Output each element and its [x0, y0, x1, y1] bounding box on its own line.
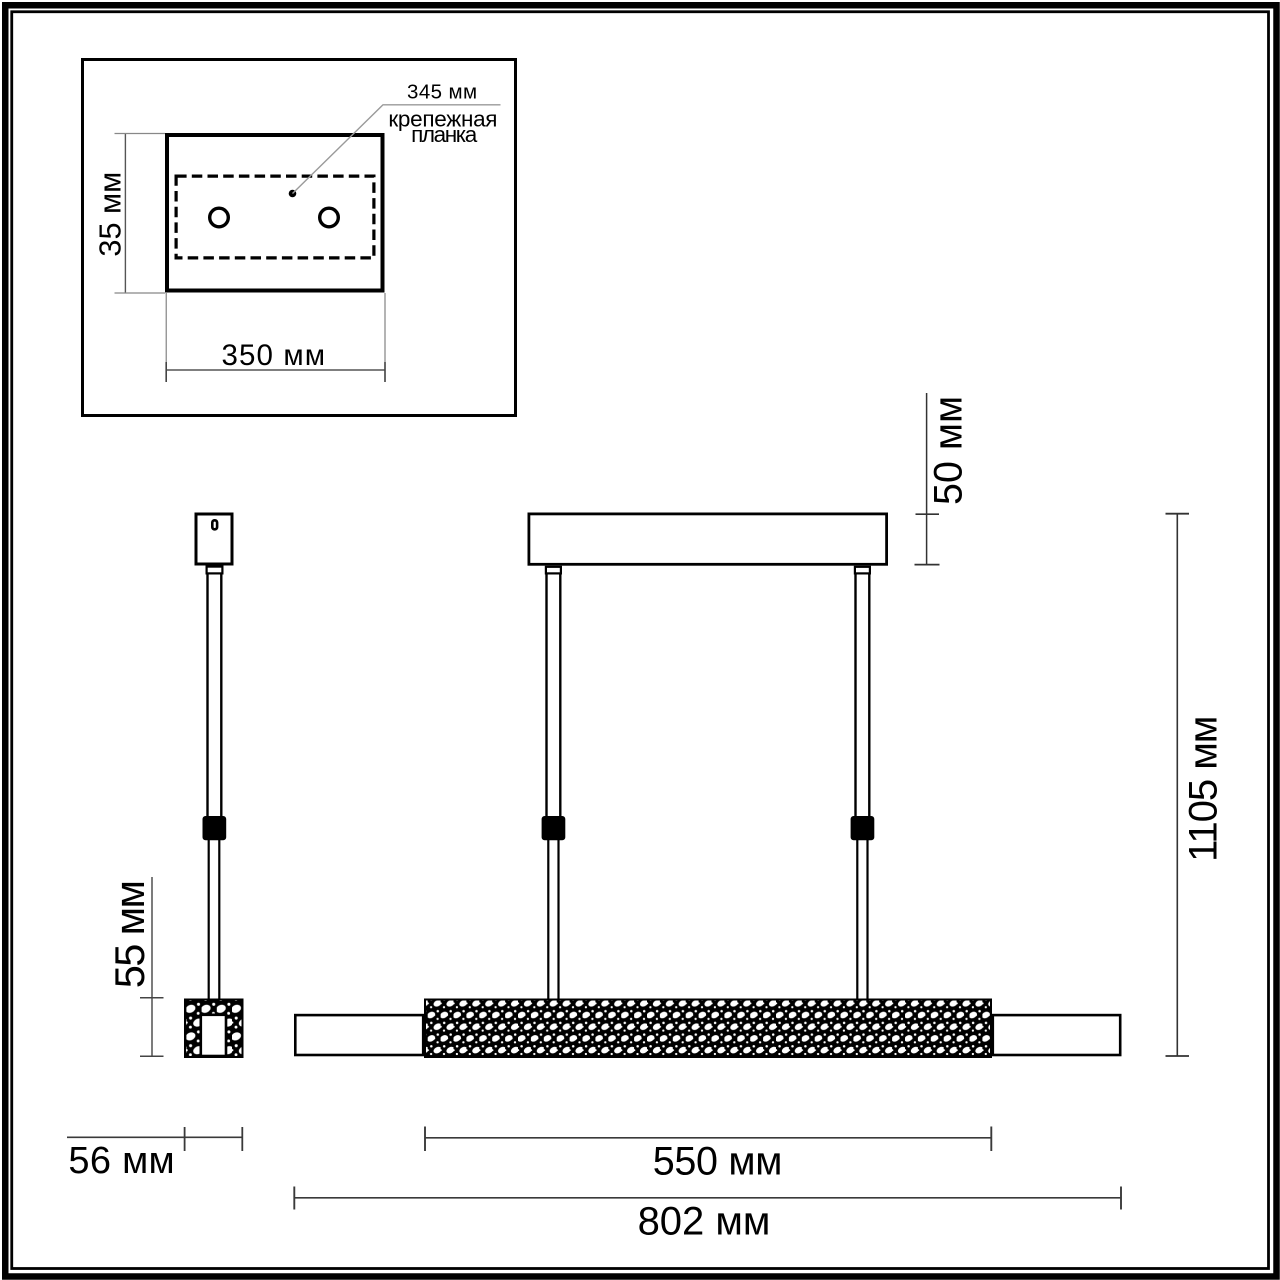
svg-text:35 мм: 35 мм [93, 172, 128, 257]
svg-text:планка: планка [411, 122, 478, 147]
svg-text:55 мм: 55 мм [106, 882, 153, 989]
svg-text:350 мм: 350 мм [222, 339, 327, 372]
svg-text:1105 мм: 1105 мм [1181, 717, 1226, 862]
svg-text:802 мм: 802 мм [638, 1199, 771, 1243]
svg-text:56 мм: 56 мм [68, 1140, 175, 1182]
svg-text:50 мм: 50 мм [927, 396, 971, 505]
svg-text:550 мм: 550 мм [653, 1139, 782, 1183]
svg-text:345 мм: 345 мм [407, 80, 478, 103]
